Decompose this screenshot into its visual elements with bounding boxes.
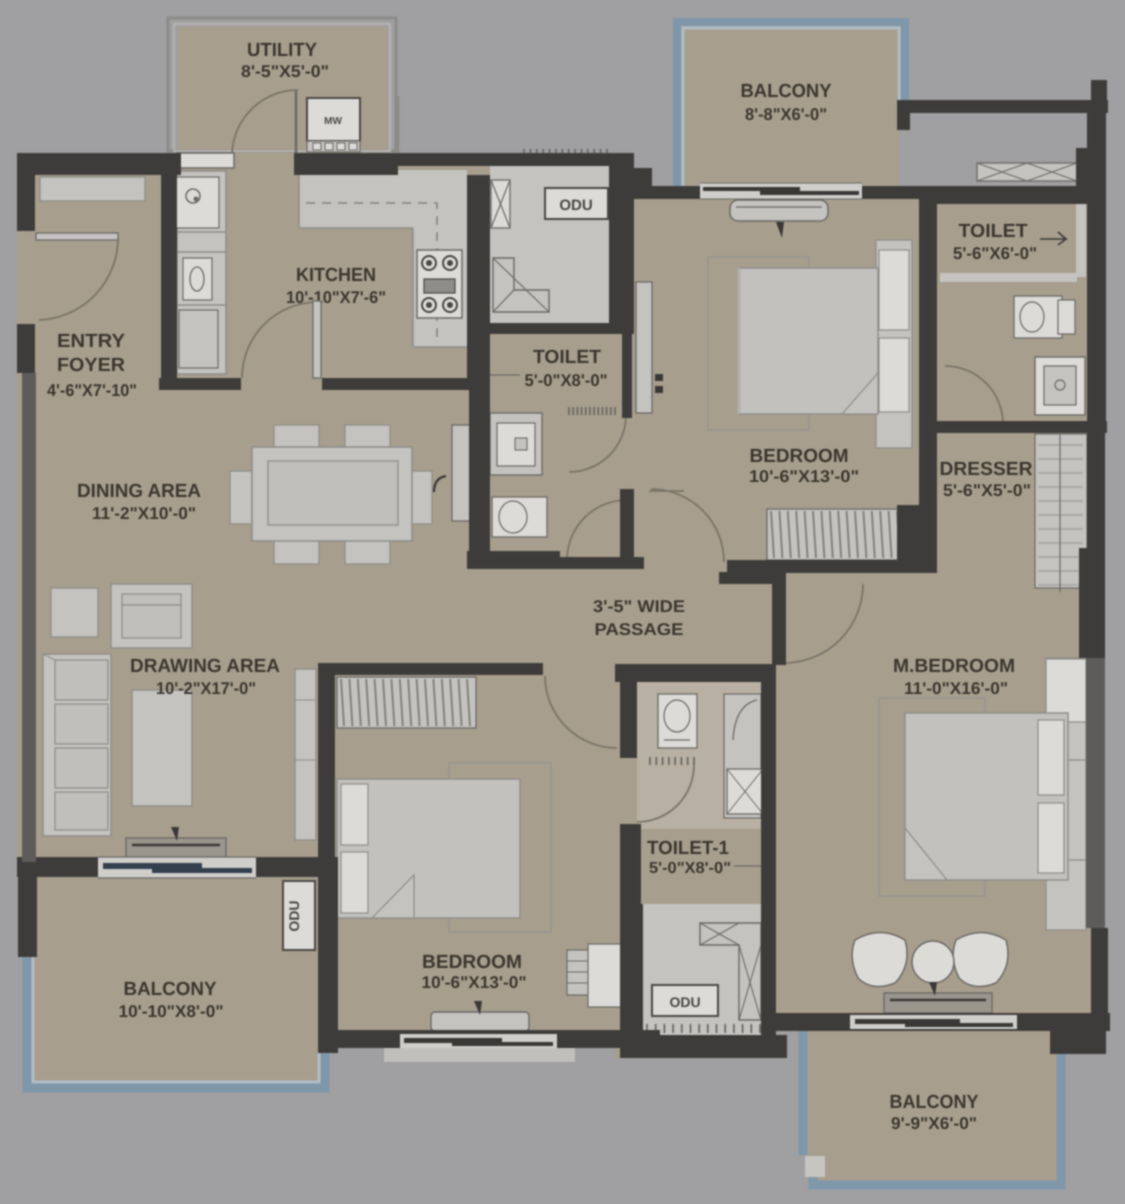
svg-text:FOYER: FOYER <box>57 355 125 376</box>
svg-text:ODU: ODU <box>286 900 302 931</box>
svg-text:5'-0"X8'-0": 5'-0"X8'-0" <box>525 371 608 390</box>
svg-text:BEDROOM: BEDROOM <box>422 952 522 973</box>
svg-text:PASSAGE: PASSAGE <box>595 620 684 639</box>
svg-text:TOILET: TOILET <box>959 221 1028 242</box>
svg-text:10'-6"X13'-0": 10'-6"X13'-0" <box>422 973 527 992</box>
svg-text:5'-0"X8'-0": 5'-0"X8'-0" <box>649 860 731 877</box>
svg-text:BEDROOM: BEDROOM <box>750 446 849 467</box>
svg-text:BALCONY: BALCONY <box>890 1092 979 1113</box>
svg-text:ENTRY: ENTRY <box>57 331 125 352</box>
svg-text:11'-0"X16'-0": 11'-0"X16'-0" <box>904 679 1008 698</box>
svg-text:BALCONY: BALCONY <box>124 979 217 1000</box>
svg-text:BALCONY: BALCONY <box>741 81 832 102</box>
svg-text:10'-6"X13'-0": 10'-6"X13'-0" <box>749 467 859 486</box>
svg-text:TOILET: TOILET <box>533 347 601 368</box>
svg-text:5'-6"X6'-0": 5'-6"X6'-0" <box>953 244 1037 263</box>
svg-text:MW: MW <box>324 116 342 127</box>
svg-text:ODU: ODU <box>669 994 700 1010</box>
svg-text:3'-5" WIDE: 3'-5" WIDE <box>593 597 685 616</box>
svg-text:8'-8"X6'-0": 8'-8"X6'-0" <box>745 105 827 124</box>
svg-text:11'-2"X10'-0": 11'-2"X10'-0" <box>92 504 196 523</box>
svg-text:9'-9"X6'-0": 9'-9"X6'-0" <box>891 1114 977 1133</box>
svg-text:8'-5"X5'-0": 8'-5"X5'-0" <box>241 62 329 81</box>
svg-text:UTILITY: UTILITY <box>247 40 317 61</box>
svg-text:5'-6"X5'-0": 5'-6"X5'-0" <box>943 481 1031 500</box>
svg-text:TOILET-1: TOILET-1 <box>647 838 729 859</box>
svg-text:DINING AREA: DINING AREA <box>77 481 201 502</box>
svg-text:10'-10"X8'-0": 10'-10"X8'-0" <box>119 1002 224 1021</box>
svg-text:DRESSER: DRESSER <box>940 459 1033 480</box>
svg-text:4'-6"X7'-10": 4'-6"X7'-10" <box>47 381 137 400</box>
svg-text:KITCHEN: KITCHEN <box>296 265 376 286</box>
svg-text:DRAWING AREA: DRAWING AREA <box>130 656 280 677</box>
svg-text:M.BEDROOM: M.BEDROOM <box>893 656 1015 677</box>
svg-text:10'-2"X17'-0": 10'-2"X17'-0" <box>156 679 256 698</box>
svg-text:ODU: ODU <box>559 197 592 214</box>
